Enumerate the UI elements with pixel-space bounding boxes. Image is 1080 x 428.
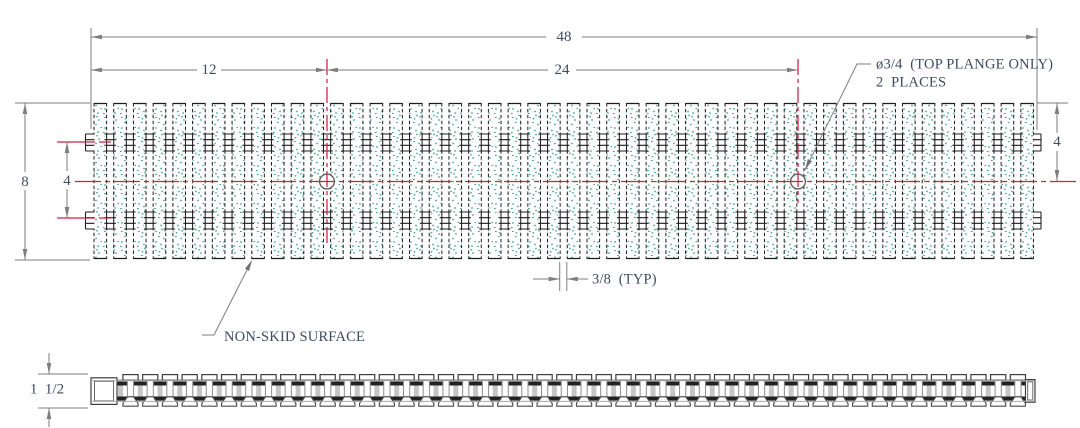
ibar-top-flange [695, 375, 710, 381]
ibar-top-flange [793, 375, 808, 381]
ibar-web [719, 380, 725, 397]
ibar-web [916, 380, 922, 397]
ibar-web [246, 380, 252, 397]
ibar-top-flange [636, 375, 651, 381]
ibar-top-flange [853, 375, 868, 381]
ibar-web [581, 380, 587, 397]
ibar-top-flange [478, 375, 493, 381]
ibar-top-flange [498, 375, 513, 381]
ibar-web [423, 380, 429, 397]
ibar-web [758, 380, 764, 397]
ibar-web [561, 380, 567, 397]
ibar-web [206, 380, 212, 397]
ibar-top-flange [1010, 375, 1025, 381]
ibar-web [699, 380, 705, 397]
ibar-web [285, 380, 291, 397]
ibar-web [443, 380, 449, 397]
ibar-top-flange [912, 375, 927, 381]
ibar-top-flange [931, 375, 946, 381]
right-end-cap [1026, 380, 1036, 403]
ibar-web [482, 380, 488, 397]
ibar-top-flange [281, 375, 296, 381]
ibar-web [877, 380, 883, 397]
hole-callout-line1: ø3/4 (TOP PLANGE ONLY) [876, 57, 1053, 73]
ibar-top-flange [872, 375, 887, 381]
ibar-web [739, 380, 745, 397]
ibar-top-flange [616, 375, 631, 381]
ibar-top-flange [162, 375, 177, 381]
ibar-top-flange [596, 375, 611, 381]
ibar-web [265, 380, 271, 397]
dim-thickness-label: 1 1/2 [30, 382, 64, 398]
dim-hole-spacing-label: 24 [555, 62, 571, 78]
ibar-top-flange [458, 375, 473, 381]
ibar-top-flange [813, 375, 828, 381]
ibar-top-flange [971, 375, 986, 381]
ibar-top-flange [833, 375, 848, 381]
ibar-top-flange [715, 375, 730, 381]
ibar-web [818, 380, 824, 397]
ibar-web [778, 380, 784, 397]
ibar-web [660, 380, 666, 397]
hole-callout-line2: 2 PLACES [876, 75, 946, 91]
ibar-top-flange [300, 375, 315, 381]
ibar-web [601, 380, 607, 397]
ibar-web [403, 380, 409, 397]
ibar-web [187, 380, 193, 397]
ibar-top-flange [379, 375, 394, 381]
ibar-web [542, 380, 548, 397]
ibar-top-flange [261, 375, 276, 381]
dim-hole1-offset-label: 12 [202, 62, 217, 78]
ibar-web [226, 380, 232, 397]
ibar-top-flange [320, 375, 335, 381]
ibar-top-flange [143, 375, 158, 381]
ibar-web [680, 380, 686, 397]
ibar-web [640, 380, 646, 397]
dim-overall-width-label: 48 [557, 29, 572, 45]
dim-rod-spacing-label: 4 [63, 173, 71, 189]
dim-edge-to-centerline-label: 4 [1053, 134, 1061, 150]
ibar-web [995, 380, 1001, 397]
ibar-top-flange [951, 375, 966, 381]
ibar-top-flange [182, 375, 197, 381]
ibar-top-flange [123, 375, 138, 381]
ibar-top-flange [754, 375, 769, 381]
ibar-web [127, 380, 133, 397]
ibar-web [975, 380, 981, 397]
ibar-web [1015, 380, 1021, 397]
ibar-top-flange [399, 375, 414, 381]
ibar-top-flange [655, 375, 670, 381]
grating-tread-drawing: 4812248443/8 (TYP)ø3/4 (TOP PLANGE ONLY)… [0, 0, 1080, 428]
ibar-top-flange [537, 375, 552, 381]
ibar-web [896, 380, 902, 397]
ibar-web [837, 380, 843, 397]
ibar-web [364, 380, 370, 397]
ibar-top-flange [892, 375, 907, 381]
ibar-web [502, 380, 508, 397]
ibar-top-flange [774, 375, 789, 381]
ibar-top-flange [734, 375, 749, 381]
ibar-top-flange [419, 375, 434, 381]
ibar-top-flange [340, 375, 355, 381]
ibar-web [936, 380, 942, 397]
ibar-web [857, 380, 863, 397]
nonskid-surface-label: NON-SKID SURFACE [224, 329, 365, 345]
ibar-top-flange [360, 375, 375, 381]
ibar-web [384, 380, 390, 397]
ibar-top-flange [675, 375, 690, 381]
ibar-top-flange [222, 375, 237, 381]
ibar-web [620, 380, 626, 397]
dim-bar-gap-label: 3/8 (TYP) [592, 272, 657, 288]
ibar-top-flange [517, 375, 532, 381]
ibar-top-flange [438, 375, 453, 381]
ibar-web [147, 380, 153, 397]
drawing-canvas: 4812248443/8 (TYP)ø3/4 (TOP PLANGE ONLY)… [0, 0, 1080, 428]
ibar-top-flange [991, 375, 1006, 381]
ibar-web [305, 380, 311, 397]
ibar-web [463, 380, 469, 397]
ibar-web [325, 380, 331, 397]
ibar-top-flange [557, 375, 572, 381]
ibar-web [167, 380, 173, 397]
ibar-top-flange [202, 375, 217, 381]
ibar-web [522, 380, 528, 397]
ibar-top-flange [241, 375, 256, 381]
ibar-web [798, 380, 804, 397]
ibar-web [344, 380, 350, 397]
ibar-top-flange [576, 375, 591, 381]
ibar-web [956, 380, 962, 397]
dim-overall-depth-label: 8 [21, 174, 29, 190]
